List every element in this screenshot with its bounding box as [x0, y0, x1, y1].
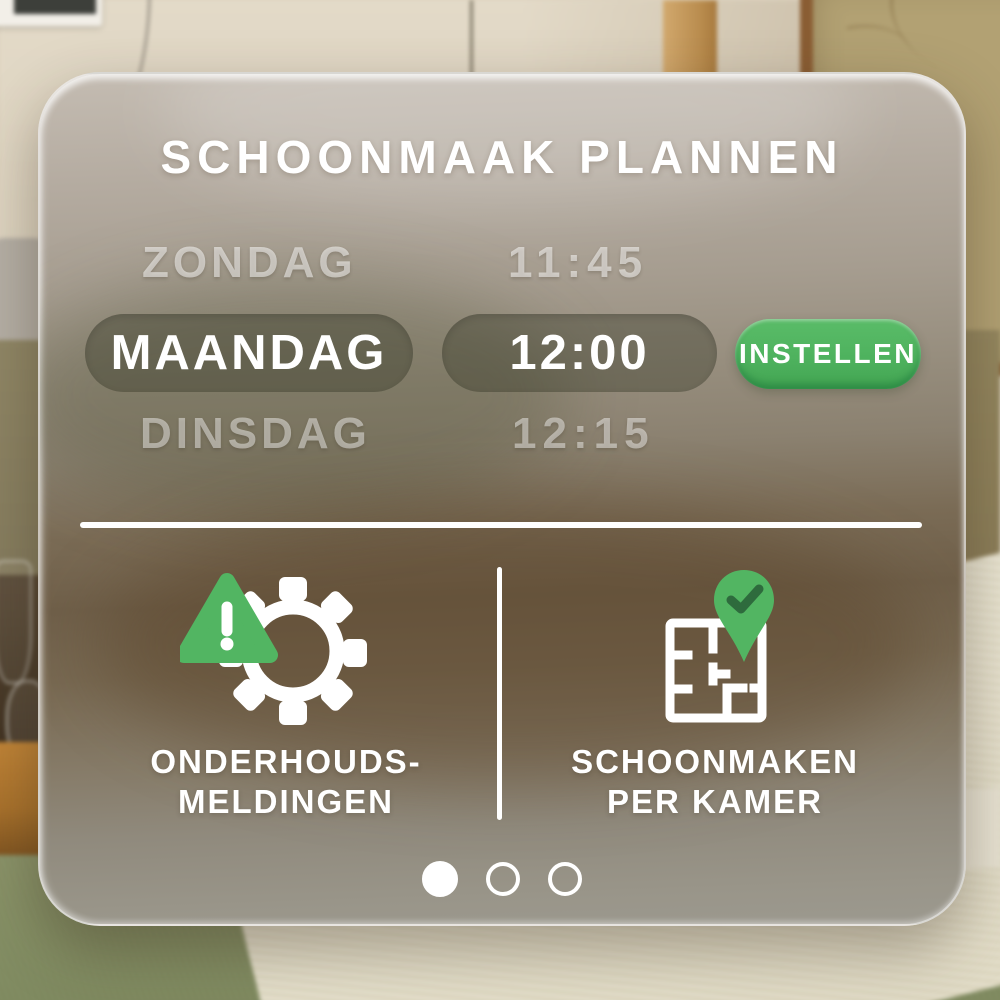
floorplan-check-icon[interactable]	[660, 564, 810, 726]
pagination-dot[interactable]	[486, 862, 520, 896]
feature-label-line: PER KAMER	[535, 782, 895, 822]
selected-time-pill[interactable]: 12:00	[442, 314, 717, 392]
feature-maintenance[interactable]: ONDERHOUDS- MELDINGEN	[106, 742, 466, 823]
feature-clean-per-room[interactable]: SCHOONMAKEN PER KAMER	[535, 742, 895, 823]
feature-label-line: SCHOONMAKEN	[535, 742, 895, 782]
pagination-dots	[40, 859, 964, 899]
gear-warning-icon[interactable]	[180, 571, 370, 736]
feature-label-line: ONDERHOUDS-	[106, 742, 466, 782]
schedule-panel: SCHOONMAAK PLANNEN ZONDAG 11:45 MAANDAG …	[38, 72, 966, 926]
day-label[interactable]: DINSDAG	[140, 409, 371, 459]
pagination-dot[interactable]	[422, 861, 458, 897]
time-value: 12:00	[509, 325, 649, 381]
feature-label-line: MELDINGEN	[106, 782, 466, 822]
panel-title: SCHOONMAAK PLANNEN	[40, 130, 964, 184]
selected-day-pill[interactable]: MAANDAG	[85, 314, 413, 392]
set-schedule-button[interactable]: INSTELLEN	[735, 319, 921, 389]
time-value[interactable]: 11:45	[508, 238, 648, 288]
day-label: MAANDAG	[111, 325, 388, 381]
vertical-divider	[497, 567, 502, 820]
horizontal-divider	[80, 522, 922, 528]
time-value[interactable]: 12:15	[512, 409, 655, 459]
screen: SCHOONMAAK PLANNEN ZONDAG 11:45 MAANDAG …	[0, 0, 1000, 1000]
day-label[interactable]: ZONDAG	[142, 238, 357, 288]
pagination-dot[interactable]	[548, 862, 582, 896]
wine-glass	[0, 560, 32, 684]
